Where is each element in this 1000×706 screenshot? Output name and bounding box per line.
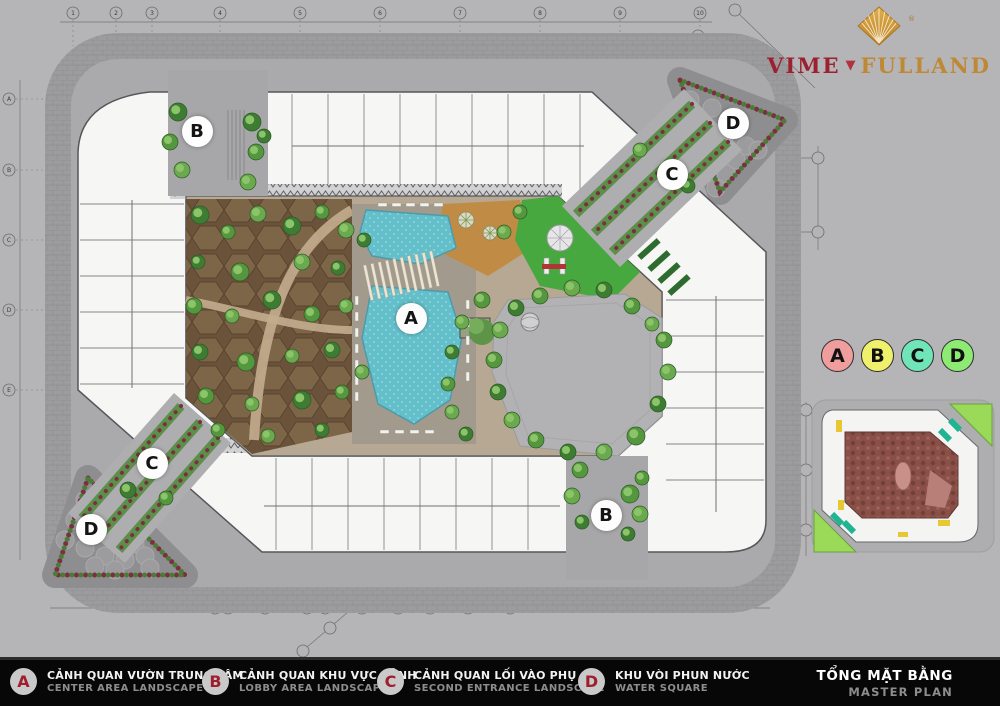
plan-marker-d: D [76, 514, 107, 545]
key-inset-plan [812, 400, 994, 552]
svg-text:4: 4 [218, 10, 222, 17]
svg-text:2: 2 [114, 10, 118, 17]
svg-text:5: 5 [298, 10, 302, 17]
svg-text:D: D [7, 307, 12, 314]
sheet-title: TỔNG MẶT BẰNG MASTER PLAN [817, 668, 953, 699]
zone-chip-a: A [821, 339, 854, 372]
zone-chip-d: D [941, 339, 974, 372]
svg-text:7: 7 [458, 10, 462, 17]
legend-circle-a: A [10, 668, 37, 695]
svg-text:C: C [7, 237, 11, 244]
legend-circle-c: C [377, 668, 404, 695]
zone-key-chips: ABCD [821, 339, 974, 372]
gold-diamond-fan-icon [856, 5, 902, 47]
svg-text:1: 1 [71, 10, 75, 17]
svg-text:8: 8 [538, 10, 542, 17]
plan-marker-d: D [718, 108, 749, 139]
zone-chip-c: C [901, 339, 934, 372]
sheet-title-en: MASTER PLAN [817, 685, 953, 699]
svg-text:6: 6 [378, 10, 382, 17]
plan-marker-c: C [657, 159, 688, 190]
master-plan-sheet: 12345678910ABCDE568760910111213 [0, 0, 1000, 706]
legend-item-d: DKHU VÒI PHUN NƯỚCWATER SQUARE [578, 668, 750, 695]
sheet-title-vi: TỔNG MẶT BẰNG [817, 668, 953, 684]
zone-chip-b: B [861, 339, 894, 372]
plan-marker-b: B [591, 500, 622, 531]
brand-logo: ® VIME ▼ FULLAND [760, 5, 998, 78]
svg-text:9: 9 [618, 10, 622, 17]
legend-circle-d: D [578, 668, 605, 695]
registered-mark: ® [908, 15, 915, 23]
legend-circle-b: B [202, 668, 229, 695]
brand-name-right: FULLAND [860, 53, 990, 78]
plan-marker-c: C [137, 448, 168, 479]
svg-text:E: E [7, 387, 11, 394]
plan-marker-a: A [396, 303, 427, 334]
brand-name-left: VIME [767, 53, 840, 78]
legend-bar: ACẢNH QUAN VƯỜN TRUNG TÂMCENTER AREA LAN… [0, 657, 1000, 706]
brand-triangle-icon: ▼ [845, 58, 855, 73]
svg-text:B: B [7, 167, 11, 174]
svg-text:3: 3 [150, 10, 154, 17]
svg-text:10: 10 [696, 10, 704, 17]
site-plan-drawing: 12345678910ABCDE568760910111213 [0, 0, 1000, 657]
legend-item-c: CCẢNH QUAN LỐI VÀO PHỤSECOND ENTRANCE LA… [377, 668, 605, 695]
plan-marker-b: B [182, 116, 213, 147]
